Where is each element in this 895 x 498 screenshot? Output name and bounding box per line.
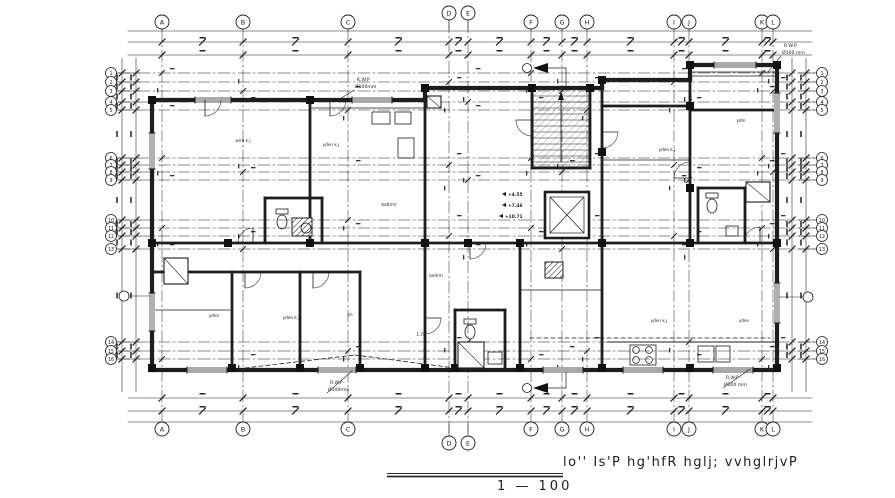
dim-text-mark — [595, 215, 600, 216]
dim-text-mark — [356, 223, 361, 224]
dim-text-mark — [476, 68, 481, 69]
dim-text-mark — [723, 50, 729, 52]
column — [148, 364, 156, 372]
dim-text-mark — [765, 50, 771, 52]
dim-text-mark — [476, 105, 481, 106]
dim-text-mark — [800, 103, 802, 109]
grid-bubble-label: A — [160, 18, 165, 26]
dim-text-mark — [544, 393, 550, 395]
dim-text-mark — [157, 88, 158, 93]
column — [516, 239, 524, 247]
dim-text-mark — [396, 406, 402, 408]
dim-text-mark — [781, 77, 786, 78]
dim-text-mark — [130, 173, 132, 179]
level-label: +10.71 — [505, 214, 523, 220]
room-label: ydm — [736, 118, 745, 123]
dim-text-mark — [679, 393, 685, 395]
dim-text-mark — [396, 37, 402, 39]
dim-text-mark — [539, 354, 544, 355]
dim-text-mark — [800, 131, 802, 137]
dim-text-mark — [544, 50, 550, 52]
floor-plan-drawing: w/m k.jyden k.jyden k.jydmbathrmydenyden… — [0, 0, 895, 498]
dim-text-mark — [251, 167, 256, 168]
dim-text-mark — [457, 337, 462, 338]
dim-text-mark — [200, 37, 206, 39]
toilet — [465, 325, 475, 339]
column — [686, 184, 694, 192]
dim-text-mark — [768, 164, 769, 169]
column — [421, 84, 429, 92]
dim-text-mark — [669, 108, 670, 113]
pipe-label-size: Ø100 mm — [782, 49, 805, 56]
dim-text-mark — [130, 197, 132, 203]
column — [148, 96, 156, 104]
ref-tag-circle — [119, 291, 129, 301]
grid-bubble-label: H — [585, 18, 590, 26]
dim-text-mark — [572, 50, 578, 52]
grid-bubble-label: J — [687, 425, 690, 433]
column — [228, 364, 236, 372]
dim-text-mark — [293, 406, 299, 408]
dim-text-mark — [293, 37, 299, 39]
dim-text-mark — [800, 94, 802, 100]
column — [421, 239, 429, 247]
floor-plan-canvas: w/m k.jyden k.jyden k.jydmbathrmydenyden… — [0, 0, 895, 498]
column — [148, 239, 156, 247]
dim-text-mark — [786, 352, 788, 358]
toilet-tank — [706, 193, 718, 198]
dim-text-mark — [684, 178, 685, 183]
room-label: w/m k.j — [235, 138, 250, 143]
dim-text-mark — [238, 164, 239, 169]
column — [598, 148, 606, 156]
scale-text: 1 — 100 — [497, 479, 572, 494]
level-arrow — [502, 192, 506, 196]
dim-text-mark — [800, 84, 802, 90]
door-swing — [470, 243, 486, 259]
dim-text-mark — [130, 293, 132, 299]
dim-text-mark — [157, 171, 158, 176]
dim-text-mark — [781, 215, 786, 216]
dim-text-mark — [684, 255, 685, 260]
dim-text-mark — [444, 108, 445, 113]
dim-text-mark — [768, 234, 769, 239]
grid-bubble-label: 12 — [108, 234, 114, 240]
dim-text-mark — [679, 406, 685, 408]
dim-text-mark — [679, 37, 685, 39]
dim-text-mark — [786, 159, 788, 165]
grid-bubble-label: 3 — [109, 89, 112, 95]
grid-bubble-label: E — [466, 9, 470, 17]
room-label: bedrm — [429, 273, 443, 278]
dim-text-mark — [770, 160, 775, 161]
column — [356, 364, 364, 372]
dim-text-mark — [130, 103, 132, 109]
dim-text-mark — [293, 393, 299, 395]
dim-text-mark — [765, 406, 771, 408]
dim-text-mark — [456, 393, 462, 395]
duct-shaft — [292, 218, 312, 236]
grid-bubble-label: 1 — [820, 71, 823, 77]
dim-text-mark — [356, 160, 361, 161]
dim-text-mark — [781, 153, 786, 154]
column — [516, 364, 524, 372]
room-label: yden k.j — [651, 318, 668, 323]
dim-text-mark — [757, 171, 758, 176]
section-arrow — [533, 63, 548, 73]
dim-text-mark — [770, 223, 775, 224]
dim-text-mark — [786, 221, 788, 227]
section-marker-circle — [523, 384, 532, 393]
dim-text-mark — [130, 344, 132, 350]
dim-text-mark — [116, 344, 118, 350]
dim-text-mark — [343, 116, 344, 121]
column — [598, 364, 606, 372]
dim-text-mark — [800, 75, 802, 81]
grid-bubble-label: 13 — [108, 247, 114, 253]
dim-text-mark — [786, 131, 788, 137]
dim-text-mark — [130, 240, 132, 246]
dim-text-mark — [786, 344, 788, 350]
pipe-label-name: K.W.P — [357, 77, 370, 83]
room-label: yden k.j — [659, 147, 676, 152]
door-swing — [245, 272, 261, 288]
grid-bubble-label: 5 — [109, 108, 112, 114]
dim-text-mark — [200, 393, 206, 395]
grid-bubble-label: C — [346, 425, 351, 433]
dim-text-mark — [130, 221, 132, 227]
dim-text-mark — [116, 94, 118, 100]
grid-bubble-label: H — [585, 425, 590, 433]
dim-text-mark — [786, 293, 788, 299]
grid-bubble-label: L — [771, 425, 775, 433]
dim-text-mark — [130, 131, 132, 137]
grid-bubble-label: B — [241, 18, 245, 26]
toilet — [707, 199, 717, 213]
column — [686, 61, 694, 69]
grid-bubble-label: 13 — [819, 247, 825, 253]
dim-text-mark — [800, 173, 802, 179]
dim-text-mark — [786, 240, 788, 246]
column — [598, 239, 606, 247]
dim-text-mark — [544, 406, 550, 408]
dim-text-mark — [628, 37, 634, 39]
grid-lines-layer — [118, 21, 818, 436]
room-label: jm — [346, 312, 352, 317]
grid-bubble-label: D — [446, 9, 451, 17]
dim-text-mark — [572, 37, 578, 39]
dim-text-mark — [497, 50, 503, 52]
kitchen-sink — [716, 346, 730, 362]
stove-burner — [633, 357, 640, 364]
grid-bubble-label: G — [559, 425, 564, 433]
dim-text-mark — [116, 131, 118, 137]
dim-text-mark — [476, 175, 481, 176]
grid-bubble-label: G — [559, 18, 564, 26]
grid-bubble-label: K — [760, 18, 765, 26]
dim-text-mark — [800, 229, 802, 235]
dim-text-mark — [757, 88, 758, 93]
stove-burner — [646, 347, 653, 354]
dim-text-mark — [456, 406, 462, 408]
column — [306, 96, 314, 104]
toilet-tank — [464, 319, 476, 324]
dim-text-mark — [786, 229, 788, 235]
dim-text-mark — [396, 50, 402, 52]
dim-text-mark — [800, 166, 802, 172]
dim-text-mark — [800, 159, 802, 165]
stove-burner — [633, 347, 640, 354]
dim-text-mark — [116, 84, 118, 90]
room-label: yden k.j — [283, 315, 300, 320]
dim-text-mark — [572, 393, 578, 395]
dim-text-mark — [765, 37, 771, 39]
dim-text-mark — [200, 50, 206, 52]
dim-text-mark — [786, 94, 788, 100]
dim-text-mark — [116, 240, 118, 246]
dim-text-mark — [116, 197, 118, 203]
dim-text-mark — [770, 86, 775, 87]
grid-bubble-label: 14 — [819, 340, 825, 346]
kitchen-unit — [372, 112, 390, 124]
dim-text-mark — [800, 344, 802, 350]
dim-text-mark — [572, 406, 578, 408]
dim-text-mark — [444, 348, 445, 353]
grid-bubble-label: 3 — [820, 89, 823, 95]
dim-text-mark — [800, 240, 802, 246]
grid-bubble-label: 16 — [819, 357, 825, 363]
dim-text-mark — [800, 352, 802, 358]
grid-bubble-label: C — [346, 18, 351, 26]
dim-text-mark — [768, 79, 769, 84]
dim-text-mark — [544, 37, 550, 39]
stove-burner — [646, 357, 653, 364]
dim-text-mark — [526, 171, 527, 176]
dim-text-mark — [238, 79, 239, 84]
kitchen-unit — [395, 112, 411, 124]
level-arrow — [499, 214, 503, 218]
dim-text-mark — [130, 75, 132, 81]
column — [224, 239, 232, 247]
dim-text-mark — [130, 166, 132, 172]
dim-text-mark — [539, 231, 544, 232]
room-label: yden k.j — [323, 142, 340, 147]
dim-text-mark — [130, 352, 132, 358]
toilet — [277, 215, 287, 229]
dim-text-mark — [697, 97, 702, 98]
dim-text-mark — [463, 97, 464, 102]
dim-text-mark — [628, 393, 634, 395]
grid-bubble-label: D — [446, 439, 451, 447]
dim-text-mark — [682, 175, 687, 176]
dim-text-mark — [800, 293, 802, 299]
grid-bubble-label: 2 — [109, 80, 112, 86]
column — [773, 364, 781, 372]
dim-text-mark — [463, 178, 464, 183]
dim-text-mark — [497, 406, 503, 408]
grid-bubble-label: F — [529, 18, 533, 26]
dim-text-mark — [786, 75, 788, 81]
dim-text-mark — [582, 357, 583, 362]
dim-text-mark — [130, 159, 132, 165]
grid-bubble-label: 14 — [108, 340, 114, 346]
level-arrow — [502, 203, 506, 207]
grid-bubble-label: 5 — [820, 108, 823, 114]
column — [464, 239, 472, 247]
dim-text-mark — [130, 229, 132, 235]
door-swing — [238, 228, 253, 243]
dim-text-mark — [497, 37, 503, 39]
column — [686, 364, 694, 372]
column — [686, 102, 694, 110]
dim-text-mark — [251, 354, 256, 355]
grid-bubble-label: 1 — [109, 71, 112, 77]
dim-text-mark — [684, 97, 685, 102]
dim-text-mark — [628, 50, 634, 52]
duct-shaft — [545, 262, 563, 278]
grid-bubble-label: J — [687, 18, 690, 26]
dim-text-mark — [463, 255, 464, 260]
grid-bubble-label: B — [241, 425, 245, 433]
grid-bubble-label: 2 — [820, 80, 823, 86]
dashed-overhead-line — [355, 355, 455, 368]
dim-text-mark — [723, 37, 729, 39]
dim-text-mark — [396, 393, 402, 395]
level-label: +4.55 — [508, 192, 523, 198]
dim-text-mark — [682, 68, 687, 69]
dim-text-mark — [200, 406, 206, 408]
dim-text-mark — [457, 215, 462, 216]
stair-elevator-fixtures-layer — [149, 62, 780, 373]
column — [598, 76, 606, 84]
sink — [726, 226, 738, 236]
dim-text-mark — [786, 84, 788, 90]
grid-bubble-label: I — [673, 425, 675, 433]
dim-text-mark — [293, 50, 299, 52]
grid-bubble-label: K — [760, 425, 765, 433]
column — [421, 364, 429, 372]
room-label: yden — [209, 313, 220, 318]
column — [306, 239, 314, 247]
dim-text-mark — [170, 68, 175, 69]
dim-text-mark — [130, 84, 132, 90]
dim-text-mark — [557, 79, 558, 84]
section-marker-circle — [523, 64, 532, 73]
dim-text-mark — [723, 393, 729, 395]
dim-text-mark — [770, 346, 775, 347]
door-swing — [516, 120, 532, 136]
dim-text-mark — [786, 103, 788, 109]
drawing-title: lo'' Is'P hg'hfR hglj; vvhglrjvP — [563, 455, 798, 470]
dim-text-mark — [679, 50, 685, 52]
column — [686, 239, 694, 247]
pipe-label-name: R.W.P — [784, 43, 797, 49]
dim-text-mark — [800, 197, 802, 203]
dim-text-mark — [697, 167, 702, 168]
dim-text-mark — [170, 105, 175, 106]
dim-text-mark — [800, 221, 802, 227]
column — [773, 61, 781, 69]
dim-text-mark — [116, 293, 118, 299]
dim-text-mark — [570, 346, 575, 347]
door-swing — [313, 272, 329, 288]
dim-text-mark — [628, 406, 634, 408]
grid-bubble-label: E — [466, 439, 470, 447]
dim-text-mark — [343, 357, 344, 362]
grid-bubble-label: 12 — [819, 234, 825, 240]
dim-text-mark — [669, 348, 670, 353]
toilet-tank — [276, 209, 288, 214]
level-label: +7.46 — [508, 203, 523, 209]
door-swing — [602, 132, 618, 148]
dim-text-mark — [457, 153, 462, 154]
grid-bubble-label: 16 — [108, 357, 114, 363]
section-arrow — [533, 383, 548, 393]
column — [296, 364, 304, 372]
dim-text-mark — [170, 175, 175, 176]
dim-text-mark — [457, 77, 462, 78]
pipe-label-size: Ø100mm — [355, 83, 377, 90]
door-swing — [425, 318, 441, 334]
room-label: bathrm — [381, 202, 396, 207]
room-label: 1.78 — [416, 332, 426, 337]
grid-bubble-label: I — [673, 18, 675, 26]
sink — [488, 352, 502, 364]
dim-text-mark — [497, 393, 503, 395]
grid-bubble-label: F — [529, 425, 533, 433]
dim-text-mark — [723, 406, 729, 408]
grid-bubble-label: A — [160, 425, 165, 433]
ref-tag-circle — [803, 292, 813, 302]
dim-text-mark — [116, 75, 118, 81]
grid-bubble-label: 9 — [820, 178, 823, 184]
dim-text-mark — [786, 197, 788, 203]
dim-text-mark — [786, 166, 788, 172]
dim-text-mark — [781, 337, 786, 338]
column — [773, 239, 781, 247]
dim-text-mark — [456, 37, 462, 39]
dim-text-mark — [456, 50, 462, 52]
room-label: yden — [739, 318, 750, 323]
grid-bubble-label: 9 — [109, 178, 112, 184]
dim-text-mark — [786, 173, 788, 179]
dim-text-mark — [130, 94, 132, 100]
kitchen-unit — [398, 138, 414, 158]
grid-bubble-label: L — [771, 18, 775, 26]
dim-text-mark — [765, 393, 771, 395]
dim-text-mark — [343, 226, 344, 231]
dim-text-mark — [444, 186, 445, 191]
dim-text-mark — [669, 186, 670, 191]
